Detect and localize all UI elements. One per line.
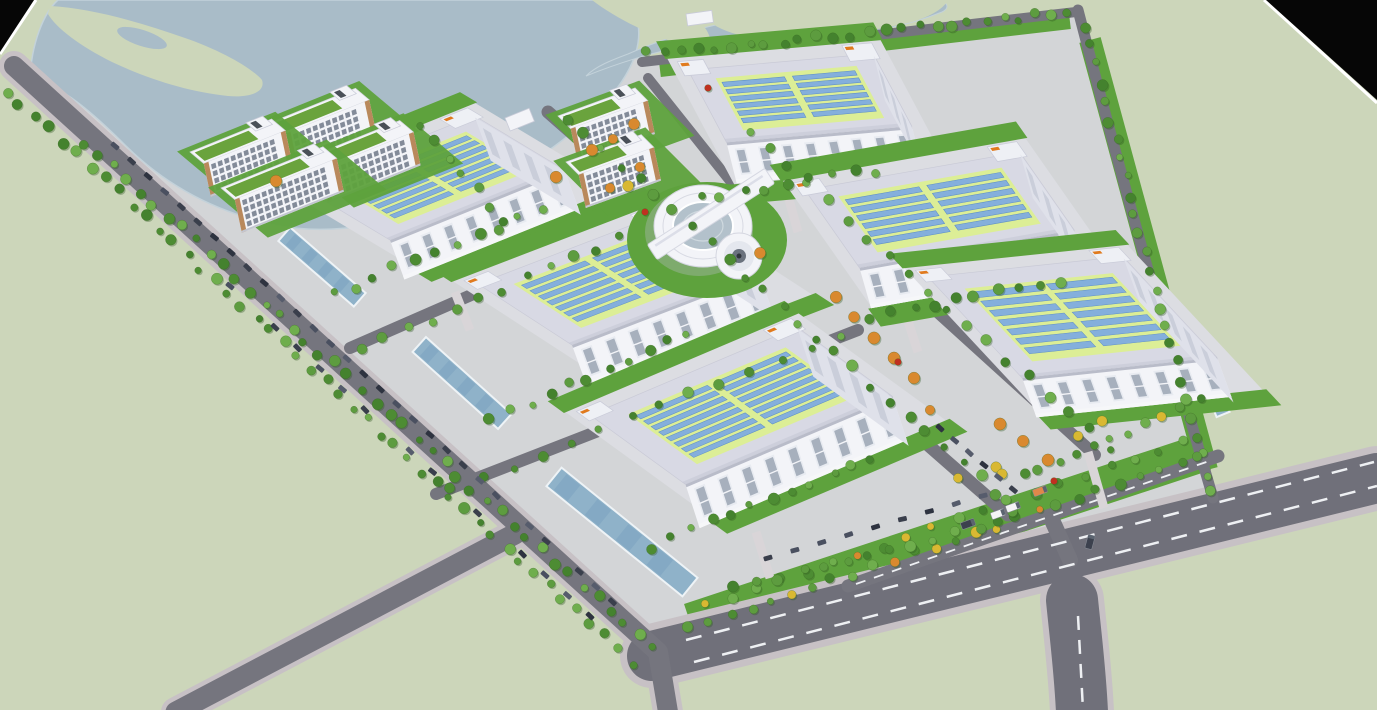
tree (264, 302, 270, 308)
tree (1036, 281, 1044, 289)
tree (1116, 154, 1123, 161)
tree (701, 600, 709, 608)
tree (529, 568, 538, 577)
tree (565, 378, 574, 387)
tree (905, 541, 916, 552)
tree (728, 593, 738, 603)
tree (782, 161, 791, 170)
tree (433, 476, 443, 486)
tree (1045, 392, 1056, 403)
tree (410, 254, 421, 265)
tree (941, 444, 948, 451)
tree (1205, 486, 1215, 496)
tree (688, 222, 696, 230)
autumn-tree (1073, 431, 1083, 441)
tree (486, 531, 494, 539)
tree (1092, 58, 1099, 65)
tree (292, 352, 300, 360)
tree (477, 519, 484, 526)
tree (474, 183, 483, 192)
tree (1024, 370, 1034, 380)
tree (506, 405, 515, 414)
tree (746, 501, 753, 508)
tree (901, 533, 910, 542)
tree (854, 552, 861, 559)
tree (772, 575, 783, 586)
tree (655, 401, 663, 409)
tree (324, 374, 333, 383)
tree (808, 584, 816, 592)
tree (851, 165, 862, 176)
tree (804, 173, 813, 182)
tree (929, 537, 936, 544)
tree (1192, 433, 1201, 442)
tree (475, 228, 486, 239)
tree (1175, 377, 1185, 387)
tree (748, 41, 755, 48)
autumn-tree (1017, 435, 1029, 447)
tree (146, 200, 156, 210)
tree (845, 33, 854, 42)
tree (981, 334, 992, 345)
red-shrub (1051, 478, 1058, 485)
industrial-park-scene (0, 0, 1377, 710)
tree (779, 356, 787, 364)
tree (457, 170, 464, 177)
tree (562, 567, 572, 577)
tree (290, 325, 300, 335)
tree (1108, 461, 1116, 469)
tree (312, 350, 322, 360)
tree (1106, 435, 1113, 442)
tree (1128, 210, 1136, 218)
autumn-tree (1097, 416, 1107, 426)
tree (594, 590, 605, 601)
tree (824, 194, 835, 205)
autumn-tree (623, 181, 634, 192)
tree (131, 204, 138, 211)
tree (1001, 495, 1011, 505)
tree (950, 526, 960, 536)
tree (1185, 413, 1196, 424)
tree (591, 247, 600, 256)
tree (846, 460, 856, 470)
tree (607, 607, 616, 616)
tree (600, 628, 610, 638)
tree (708, 514, 718, 524)
tree (572, 604, 581, 613)
tree (927, 523, 934, 530)
tree (1102, 117, 1113, 128)
tree (524, 272, 531, 279)
tree (742, 275, 749, 282)
tree (1050, 500, 1061, 511)
tree (1097, 80, 1108, 91)
tree (666, 532, 674, 540)
tree (223, 290, 230, 297)
autumn-tree (1042, 454, 1054, 466)
tree (990, 489, 1001, 500)
tree (682, 621, 693, 632)
tree (943, 306, 950, 313)
tree (863, 551, 871, 559)
red-shrub (895, 359, 902, 366)
tree (698, 192, 705, 199)
tree (1056, 277, 1067, 288)
tree (1164, 338, 1174, 348)
tree (485, 203, 494, 212)
tree (388, 438, 398, 448)
tree (473, 293, 482, 302)
tree (866, 456, 874, 464)
tree (865, 26, 876, 37)
tree (1015, 17, 1021, 23)
tree (1036, 506, 1043, 513)
tree (825, 573, 835, 583)
tree (530, 402, 536, 408)
tree (1155, 466, 1162, 473)
tree (352, 284, 361, 293)
aerial-render-image (0, 0, 1377, 710)
tree (829, 558, 837, 566)
tree (298, 338, 306, 346)
autumn-tree (849, 312, 860, 323)
autumn-tree (608, 134, 618, 144)
tree (810, 30, 821, 41)
tree (844, 216, 854, 226)
tree (641, 46, 650, 55)
tree (1132, 228, 1142, 238)
tree (1155, 304, 1166, 315)
tree (1063, 406, 1073, 416)
tree (340, 368, 351, 379)
tree (606, 365, 614, 373)
tree (946, 21, 957, 32)
tree (828, 170, 835, 177)
tree (372, 399, 383, 410)
tree (43, 120, 55, 132)
tree (1046, 10, 1056, 20)
tree (358, 387, 366, 395)
tree (193, 235, 200, 242)
tree (917, 21, 924, 28)
tree (862, 235, 871, 244)
autumn-tree (908, 372, 920, 384)
tree (245, 287, 256, 298)
tree (615, 232, 623, 240)
tree (709, 237, 717, 245)
tree (497, 288, 505, 296)
tree (446, 156, 453, 163)
tree (666, 204, 677, 215)
tree (329, 355, 340, 366)
tree (845, 558, 853, 566)
tree (1125, 172, 1131, 178)
tree (636, 173, 645, 182)
tree (726, 43, 737, 54)
tree (595, 426, 602, 433)
tree (897, 23, 906, 32)
tree (1179, 458, 1188, 467)
tree (794, 320, 802, 328)
tree (962, 18, 970, 26)
tree (906, 412, 917, 423)
tree (886, 398, 895, 407)
tree (924, 289, 932, 297)
tree (1020, 469, 1030, 479)
tree (1085, 39, 1093, 47)
red-shrub (642, 209, 649, 216)
tree (742, 186, 750, 194)
tree (865, 314, 875, 324)
tree (520, 533, 528, 541)
tree (828, 33, 839, 44)
tree (403, 454, 410, 461)
tree (1057, 458, 1065, 466)
tree (787, 590, 796, 599)
tree (568, 440, 575, 447)
tree (92, 150, 102, 160)
tree (548, 262, 555, 269)
tree (951, 292, 962, 303)
tree (881, 24, 893, 36)
tree (454, 241, 461, 248)
tree (1107, 446, 1114, 453)
tree (832, 470, 839, 477)
tree (1140, 418, 1150, 428)
autumn-tree (628, 118, 639, 129)
tree (365, 414, 372, 421)
autumn-tree (830, 291, 842, 303)
tree (511, 466, 518, 473)
autumn-tree (868, 332, 880, 344)
tree (164, 213, 175, 224)
tree (725, 254, 736, 265)
tree (682, 331, 689, 338)
tree (747, 128, 755, 136)
tree (111, 161, 118, 168)
tree (809, 345, 816, 352)
tree (1075, 494, 1085, 504)
tree (555, 595, 564, 604)
tree (357, 344, 367, 354)
tree (954, 512, 965, 523)
tree (781, 40, 789, 48)
tree (618, 619, 626, 627)
tree (646, 544, 656, 554)
tree (1030, 8, 1039, 17)
tree (867, 560, 877, 570)
tree (1080, 23, 1090, 33)
tree (713, 379, 724, 390)
tree (801, 565, 809, 573)
tree (727, 581, 738, 592)
autumn-tree (953, 473, 962, 482)
tree (464, 486, 474, 496)
tree (218, 258, 229, 269)
tree (584, 619, 594, 629)
tree (885, 306, 895, 316)
tree (458, 502, 470, 514)
tree (444, 483, 454, 493)
tree (547, 580, 555, 588)
tree (136, 189, 146, 199)
tree (1197, 394, 1205, 402)
tree (280, 336, 291, 347)
tree (378, 433, 386, 441)
tree (166, 234, 177, 245)
tree (1192, 452, 1201, 461)
tree (229, 274, 239, 284)
tree (568, 250, 579, 261)
tree (635, 629, 646, 640)
tree (912, 304, 919, 311)
tree (186, 251, 193, 258)
tree (979, 506, 987, 514)
tree (445, 494, 452, 501)
tree (1173, 355, 1182, 364)
tree (1101, 97, 1109, 105)
tree (890, 557, 899, 566)
tree (3, 88, 13, 98)
tree (829, 346, 838, 355)
tree (648, 189, 659, 200)
tree (514, 558, 521, 565)
tree (1085, 423, 1094, 432)
tree (368, 274, 376, 282)
tree (276, 310, 283, 317)
tree (443, 456, 453, 466)
tree (1126, 193, 1136, 203)
tree (449, 471, 460, 482)
tree (749, 605, 758, 614)
tree (711, 47, 718, 54)
tree (405, 323, 413, 331)
tree (744, 367, 754, 377)
tree (498, 505, 508, 515)
tree (919, 425, 930, 436)
tree (307, 366, 316, 375)
tree (1131, 455, 1139, 463)
tree (580, 375, 591, 386)
tree (256, 315, 263, 322)
autumn-tree (925, 405, 935, 415)
tree (767, 598, 774, 605)
tree (1001, 358, 1010, 367)
autumn-tree (550, 171, 562, 183)
tree (177, 220, 187, 230)
tree (781, 303, 788, 310)
tree (505, 544, 516, 555)
tree (1157, 412, 1167, 422)
tree (1115, 479, 1126, 490)
tree (976, 524, 986, 534)
autumn-tree (605, 183, 615, 193)
tree (728, 610, 737, 619)
tree (694, 43, 704, 53)
tree (805, 482, 812, 489)
tree (1160, 321, 1169, 330)
tree (759, 285, 767, 293)
tree (386, 409, 397, 420)
tree (207, 250, 216, 259)
tree (539, 205, 547, 213)
tree (1032, 465, 1042, 475)
tree (793, 35, 801, 43)
tree (1153, 287, 1161, 295)
autumn-tree (635, 162, 645, 172)
tree (759, 186, 768, 195)
tree (429, 318, 437, 326)
tree (1137, 473, 1144, 480)
tree (1124, 431, 1131, 438)
tree (1082, 473, 1090, 481)
tree (577, 127, 588, 138)
tree (31, 112, 40, 121)
tree (483, 413, 494, 424)
tree (234, 302, 244, 312)
tree (1002, 13, 1009, 20)
tree (625, 358, 632, 365)
tree (79, 140, 88, 149)
tree (1090, 441, 1098, 449)
tree (1114, 135, 1123, 144)
tree (418, 470, 426, 478)
tree (993, 284, 1004, 295)
tree (1204, 473, 1211, 480)
tree (430, 447, 437, 454)
cylinder-hub (737, 254, 742, 259)
tree (157, 228, 164, 235)
tree (430, 248, 439, 257)
tree (649, 643, 656, 650)
tree (645, 345, 656, 356)
tree (538, 451, 548, 461)
tree (714, 193, 723, 202)
tree (396, 417, 408, 429)
tree (885, 545, 893, 553)
tree (688, 524, 695, 531)
tree (886, 251, 894, 259)
tree (499, 217, 508, 226)
autumn-tree (754, 247, 765, 258)
autumn-tree (586, 144, 598, 156)
tree (120, 174, 131, 185)
tree (929, 301, 940, 312)
tree (820, 563, 828, 571)
tree (581, 584, 588, 591)
tree (429, 135, 439, 145)
red-shrub (705, 85, 712, 92)
tree (683, 387, 694, 398)
tree (614, 644, 623, 653)
tree (677, 46, 685, 54)
tree (1072, 450, 1080, 458)
tree (933, 21, 944, 32)
tree (211, 273, 222, 284)
tree (1175, 402, 1184, 411)
tree (101, 172, 111, 182)
tree (848, 572, 857, 581)
tree (514, 213, 520, 219)
tree (452, 304, 462, 314)
tree (962, 320, 972, 330)
tree (629, 412, 637, 420)
tree (510, 522, 519, 531)
tree (549, 559, 560, 570)
tree (630, 661, 638, 669)
tree (1154, 448, 1161, 455)
